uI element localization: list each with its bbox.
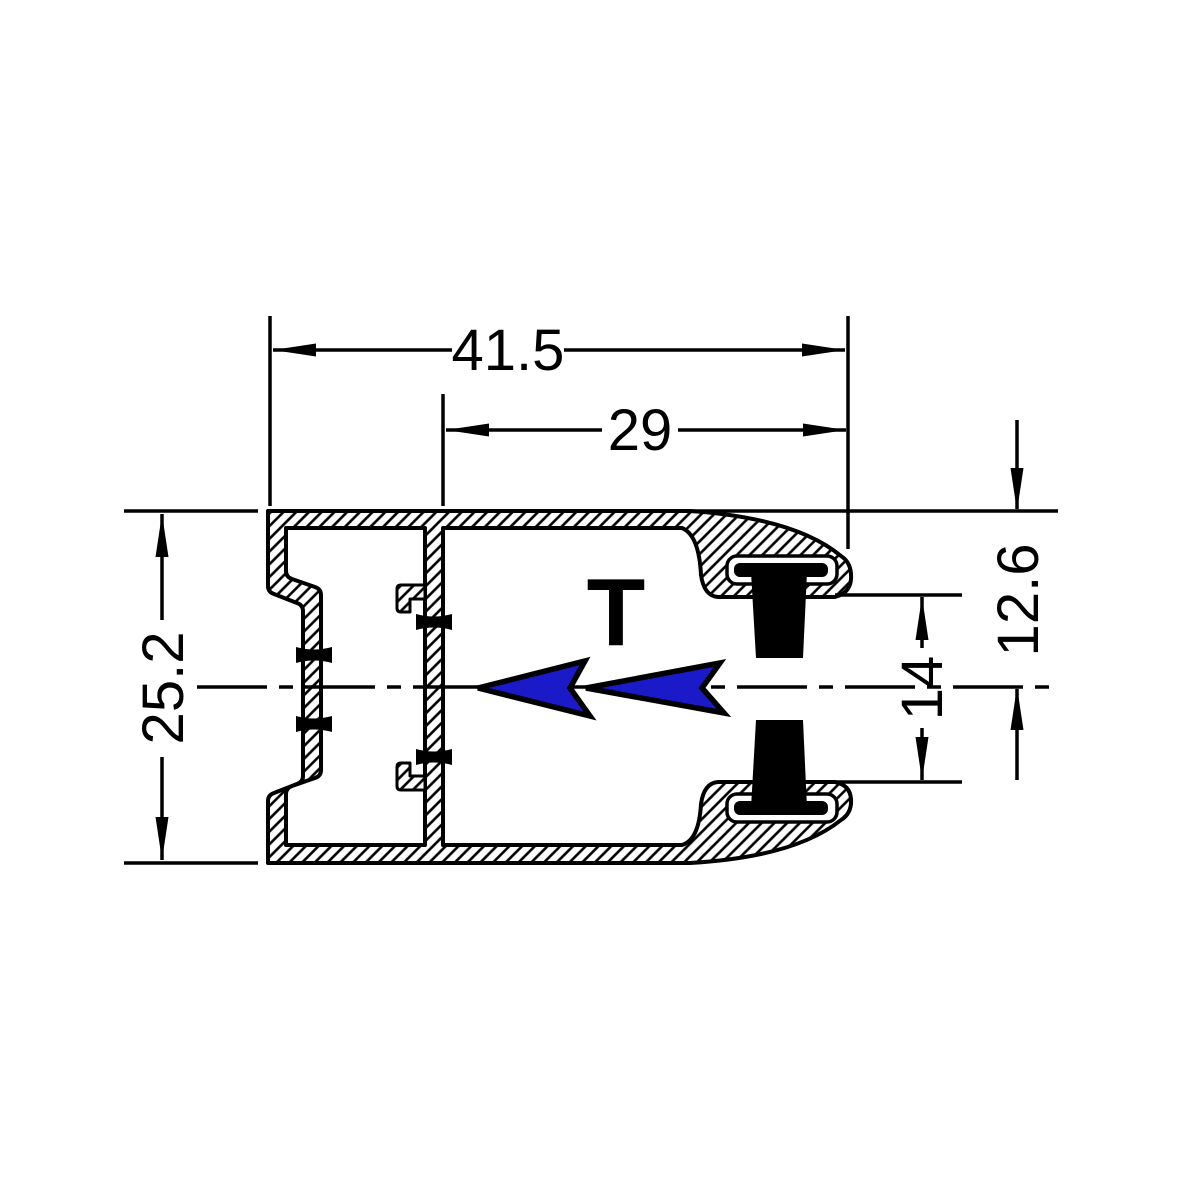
dimension-arrow <box>1011 687 1024 730</box>
dimension-value-chamber-width: 29 <box>608 398 673 463</box>
dimension-arrow <box>916 737 929 780</box>
direction-arrowhead-front <box>478 661 590 716</box>
brush-seal-assembly-bottom <box>727 720 837 822</box>
dimension-arrow <box>156 817 169 860</box>
marker-label-t: T <box>587 559 646 666</box>
dimension-half-height: 12.6 <box>690 420 1058 780</box>
dimension-arrow <box>446 424 489 437</box>
dimension-chamber-width: 29 <box>443 394 846 506</box>
dimension-value-brush-gap: 14 <box>890 656 955 721</box>
profile-cross-section-drawing: T 41.5 29 25.2 12.6 <box>0 0 1200 1200</box>
dimension-arrow <box>156 514 169 557</box>
mounting-hook-bottom <box>397 763 425 790</box>
direction-arrowhead-rear <box>586 663 724 713</box>
brush-base-top <box>734 563 828 577</box>
brush-base-bottom <box>734 801 828 815</box>
brush-pile-top <box>751 572 807 658</box>
dimension-arrow <box>916 597 929 640</box>
dimension-arrow <box>803 424 846 437</box>
technical-drawing-canvas: T 41.5 29 25.2 12.6 <box>0 0 1200 1200</box>
dimension-value-half-height: 12.6 <box>986 544 1051 657</box>
brush-seal-assembly-top <box>727 556 837 658</box>
dimension-value-overall-height: 25.2 <box>131 632 196 745</box>
dimension-arrow <box>273 344 316 357</box>
mounting-hook-top <box>397 585 425 612</box>
direction-arrow <box>478 661 724 716</box>
brush-pile-bottom <box>751 720 807 808</box>
dimension-arrow <box>802 344 845 357</box>
dimension-arrow <box>1011 468 1024 511</box>
dimension-value-overall-width: 41.5 <box>452 318 565 383</box>
